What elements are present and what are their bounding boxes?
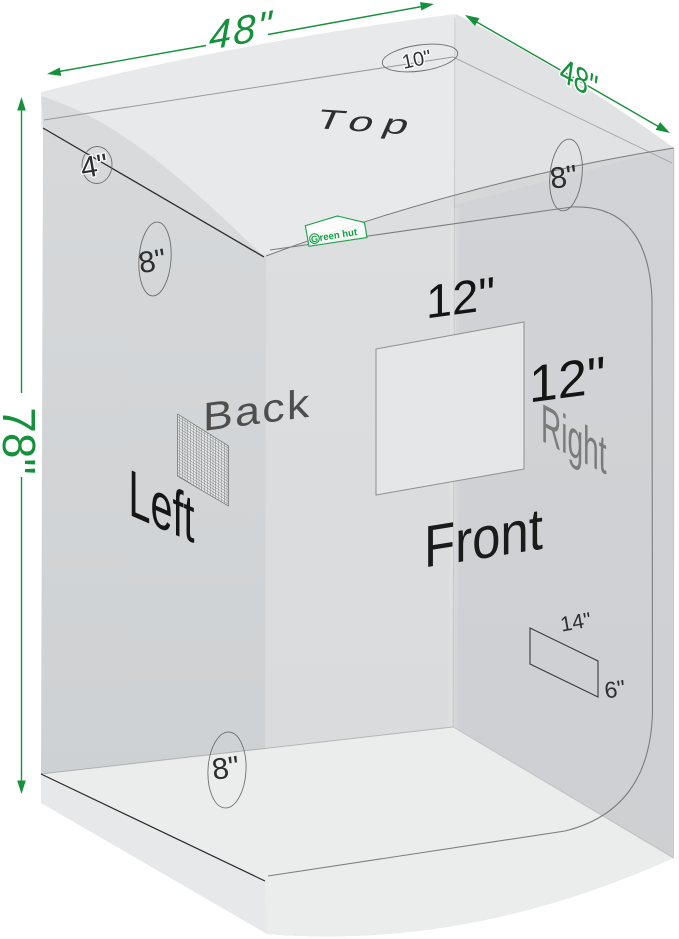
- svg-text:78": 78": [0, 407, 45, 475]
- svg-text:4": 4": [78, 148, 111, 185]
- svg-text:8": 8": [548, 159, 580, 195]
- svg-text:12": 12": [426, 267, 495, 329]
- svg-text:6": 6": [603, 675, 627, 704]
- svg-text:8": 8": [136, 243, 169, 280]
- svg-text:8": 8": [210, 750, 242, 786]
- svg-text:12": 12": [529, 346, 605, 414]
